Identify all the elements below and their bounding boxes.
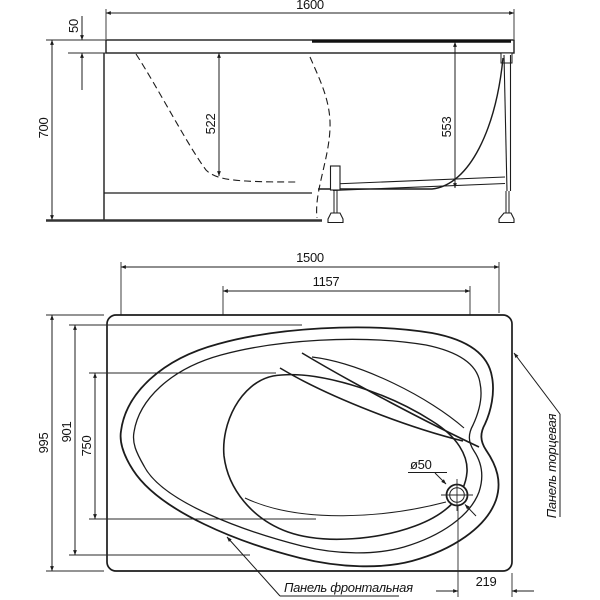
end-panel-callout: Панель торцевая <box>514 353 560 518</box>
dim-522-label: 522 <box>203 114 218 135</box>
end-panel-label: Панель торцевая <box>544 413 559 518</box>
dim-553-label: 553 <box>439 117 454 138</box>
side-elevation-view: 1600 50 700 522 553 <box>36 0 514 223</box>
dim-1600-label: 1600 <box>296 0 324 12</box>
dim-1500-label: 1500 <box>296 250 324 265</box>
end-panel-leader <box>514 353 560 414</box>
dim-drain-diameter-label: ø50 <box>410 457 432 472</box>
bathtub-technical-drawing: 1600 50 700 522 553 <box>0 0 600 600</box>
dim-995-label: 995 <box>36 433 51 454</box>
tub-outer-panel-outline <box>107 315 512 571</box>
support-leg-right <box>499 55 514 223</box>
front-panel-label: Панель фронтальная <box>284 580 413 595</box>
frame-rail-upper <box>333 177 505 184</box>
dim-219-label: 219 <box>476 574 497 589</box>
dim-50-label: 50 <box>66 19 81 33</box>
support-leg-left <box>328 166 343 223</box>
dim-750-label: 750 <box>79 436 94 457</box>
plan-view: 1500 1157 995 901 750 <box>36 250 560 597</box>
dim-700-label: 700 <box>36 118 51 139</box>
dim-1157-label: 1157 <box>313 274 340 289</box>
adjustable-foot <box>328 213 343 223</box>
adjustable-foot <box>499 213 514 223</box>
dim-901-label: 901 <box>59 422 74 443</box>
hidden-interior-contour-right <box>310 57 330 218</box>
interior-back-wall <box>318 58 503 189</box>
drawing-page: 1600 50 700 522 553 <box>0 0 600 600</box>
